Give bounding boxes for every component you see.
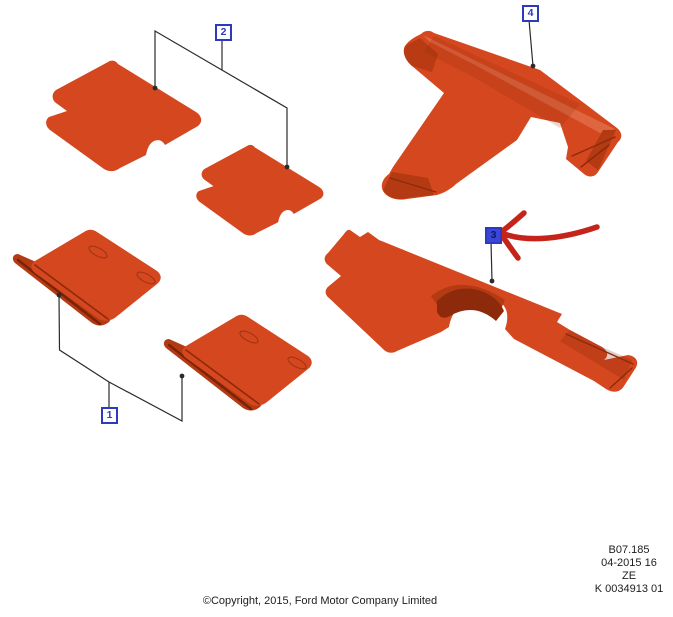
leader-line-callout-3 (491, 241, 492, 281)
one-piece-rear-mat (325, 230, 638, 392)
parts-diagram-page: 1 2 3 4 ©Copyright, 2015, Ford Motor Com… (0, 0, 673, 617)
copyright-text: ©Copyright, 2015, Ford Motor Company Lim… (203, 595, 437, 607)
console-t-mat (382, 31, 621, 200)
leader-line-callout-1 (59, 295, 182, 421)
ref-date-code: 04-2015 16 (565, 557, 673, 570)
leader-dot (57, 293, 62, 298)
red-arrow-annotation (500, 213, 597, 258)
front-floor-mat-right (164, 315, 312, 411)
red-arrow-shaft (504, 227, 597, 239)
drawing-reference-block: B07.185 04-2015 16 ZE K 0034913 01 (565, 544, 673, 596)
callout-2[interactable]: 2 (215, 24, 232, 41)
red-arrow-upper-barb (500, 213, 524, 233)
diagram-artwork (0, 0, 673, 617)
leader-dot (180, 374, 185, 379)
floor-mat-rear-left (46, 61, 201, 171)
leader-dot (153, 86, 158, 91)
callout-4[interactable]: 4 (522, 5, 539, 22)
ref-region-code: ZE (565, 570, 673, 583)
floor-mat-rear-right (196, 145, 323, 236)
leader-dot (490, 279, 495, 284)
callout-3-highlighted[interactable]: 3 (485, 227, 502, 244)
callout-1[interactable]: 1 (101, 407, 118, 424)
leader-line-callout-4 (529, 20, 533, 66)
ref-figure-code: B07.185 (565, 544, 673, 557)
ref-drawing-number: K 0034913 01 (565, 583, 673, 596)
leader-dot (531, 64, 536, 69)
front-floor-mat-left (13, 230, 161, 326)
leader-dot (285, 165, 290, 170)
